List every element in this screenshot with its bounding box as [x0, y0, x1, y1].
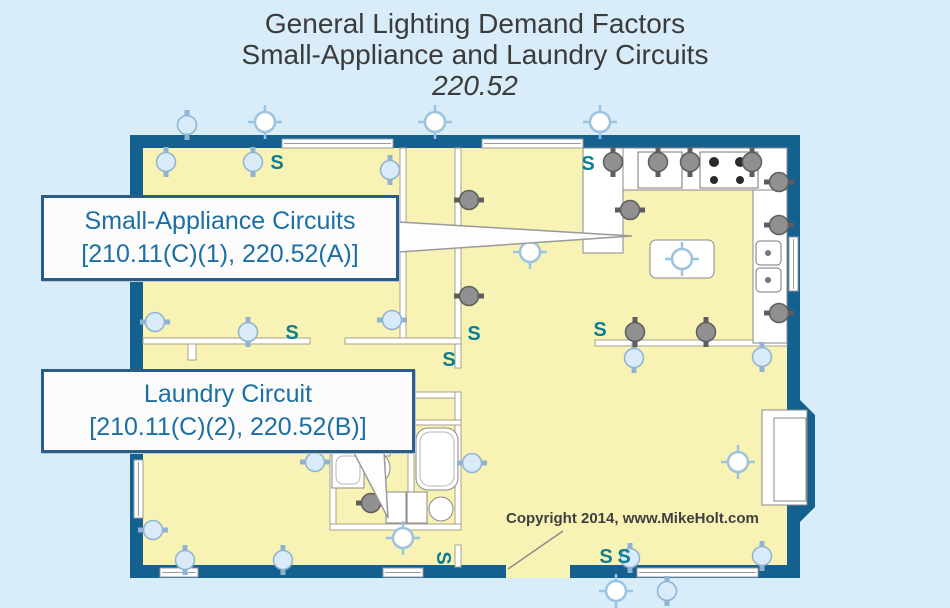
svg-text:S: S	[285, 322, 298, 344]
ceiling-light-icon	[599, 574, 633, 608]
bathtub-icon	[416, 428, 458, 490]
small-appliance-callout-title: Small-Appliance Circuits	[85, 205, 356, 238]
svg-text:S: S	[467, 323, 480, 345]
window	[383, 568, 423, 577]
wall-segment	[188, 344, 196, 360]
switch-icon: S	[593, 319, 606, 341]
wall-segment	[330, 524, 461, 530]
switch-icon: S	[432, 551, 454, 564]
switch-icon: S	[467, 323, 480, 345]
laundry-callout-reference: [210.11(C)(2), 220.52(B)]	[89, 411, 366, 444]
diagram-canvas: General Lighting Demand Factors Small-Ap…	[0, 0, 950, 608]
dryer-icon	[407, 492, 427, 523]
svg-text:S: S	[442, 349, 455, 371]
window	[134, 460, 143, 518]
wall-segment	[408, 420, 461, 425]
ceiling-light-icon	[248, 105, 282, 139]
wall-segment	[455, 545, 461, 567]
laundry-callout-title: Laundry Circuit	[144, 378, 312, 411]
svg-text:S: S	[270, 152, 283, 174]
ceiling-light-icon	[418, 105, 452, 139]
window	[282, 139, 393, 148]
small-appliance-callout-reference: [210.11(C)(1), 220.52(A)]	[81, 238, 358, 271]
washer-icon	[386, 492, 406, 523]
window	[160, 568, 198, 577]
window	[482, 139, 583, 148]
ceiling-light-icon	[583, 105, 617, 139]
svg-text:S: S	[599, 546, 612, 568]
wall-segment	[345, 338, 461, 344]
svg-text:S: S	[617, 546, 630, 568]
svg-text:S: S	[581, 153, 594, 175]
rear-door	[762, 410, 807, 505]
svg-text:S: S	[593, 319, 606, 341]
small-appliance-callout: Small-Appliance Circuits [210.11(C)(1), …	[41, 195, 399, 281]
switch-icon: S	[599, 546, 612, 568]
switch-icon: S	[617, 546, 630, 568]
receptacle-outlet-icon	[658, 576, 677, 606]
switch-icon: S	[285, 322, 298, 344]
copyright-notice: Copyright 2014, www.MikeHolt.com	[506, 510, 766, 527]
laundry-callout: Laundry Circuit [210.11(C)(2), 220.52(B)…	[41, 369, 415, 453]
wall-segment	[455, 148, 461, 368]
floor-plan: SSSSSSSSS	[0, 0, 950, 608]
switch-icon: S	[270, 152, 283, 174]
switch-icon: S	[442, 349, 455, 371]
window	[637, 568, 758, 577]
svg-text:S: S	[432, 551, 454, 564]
laundry-tub-icon	[429, 497, 453, 521]
window	[789, 237, 798, 291]
switch-icon: S	[581, 153, 594, 175]
